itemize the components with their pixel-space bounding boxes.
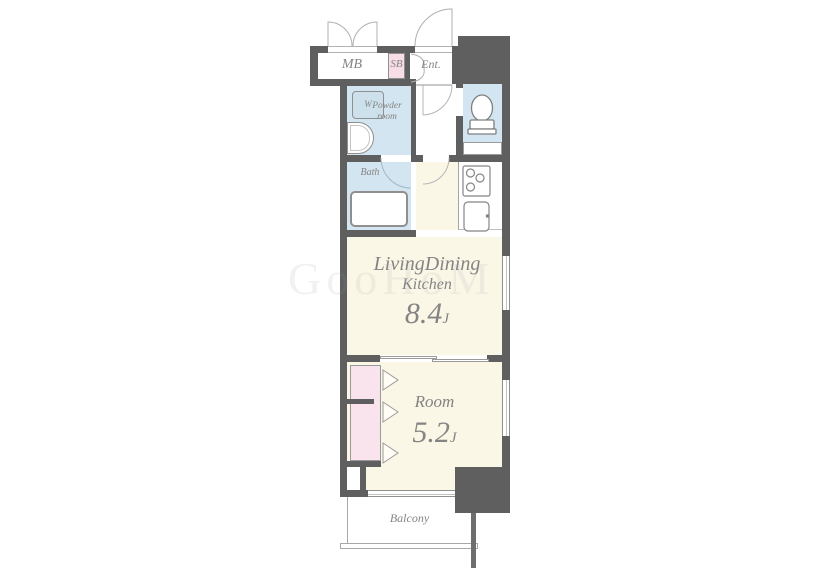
kitchen-sink-icon [464, 202, 489, 231]
sb-label: SB [387, 58, 406, 71]
powder-room-label: Powder room [360, 101, 414, 123]
balcony-label: Balcony [352, 512, 467, 526]
ldk-size-unit: J [442, 311, 449, 327]
floorplan-canvas: MB SB Ent. W Powder room Bath LivingDini… [0, 0, 819, 579]
bath-label: Bath [347, 167, 393, 179]
powder-room-label-line2: room [360, 112, 414, 123]
mb-label: MB [318, 57, 386, 73]
entrance-label: Ent. [409, 58, 453, 72]
toilet-icon [468, 95, 496, 134]
mb-door-icon [328, 22, 377, 46]
entrance-door-icon [415, 9, 452, 46]
ldk-door-icon [423, 158, 449, 184]
room-size-unit: J [450, 430, 457, 446]
room-size: 5.2J [377, 416, 492, 451]
hallway-door-icon [423, 85, 452, 115]
watermark: GooHoM [288, 252, 568, 305]
stove-icon [463, 166, 490, 196]
room-size-value: 5.2 [412, 416, 450, 449]
powder-room-label-line1: Powder [360, 101, 414, 112]
room-label: Room [377, 392, 492, 412]
